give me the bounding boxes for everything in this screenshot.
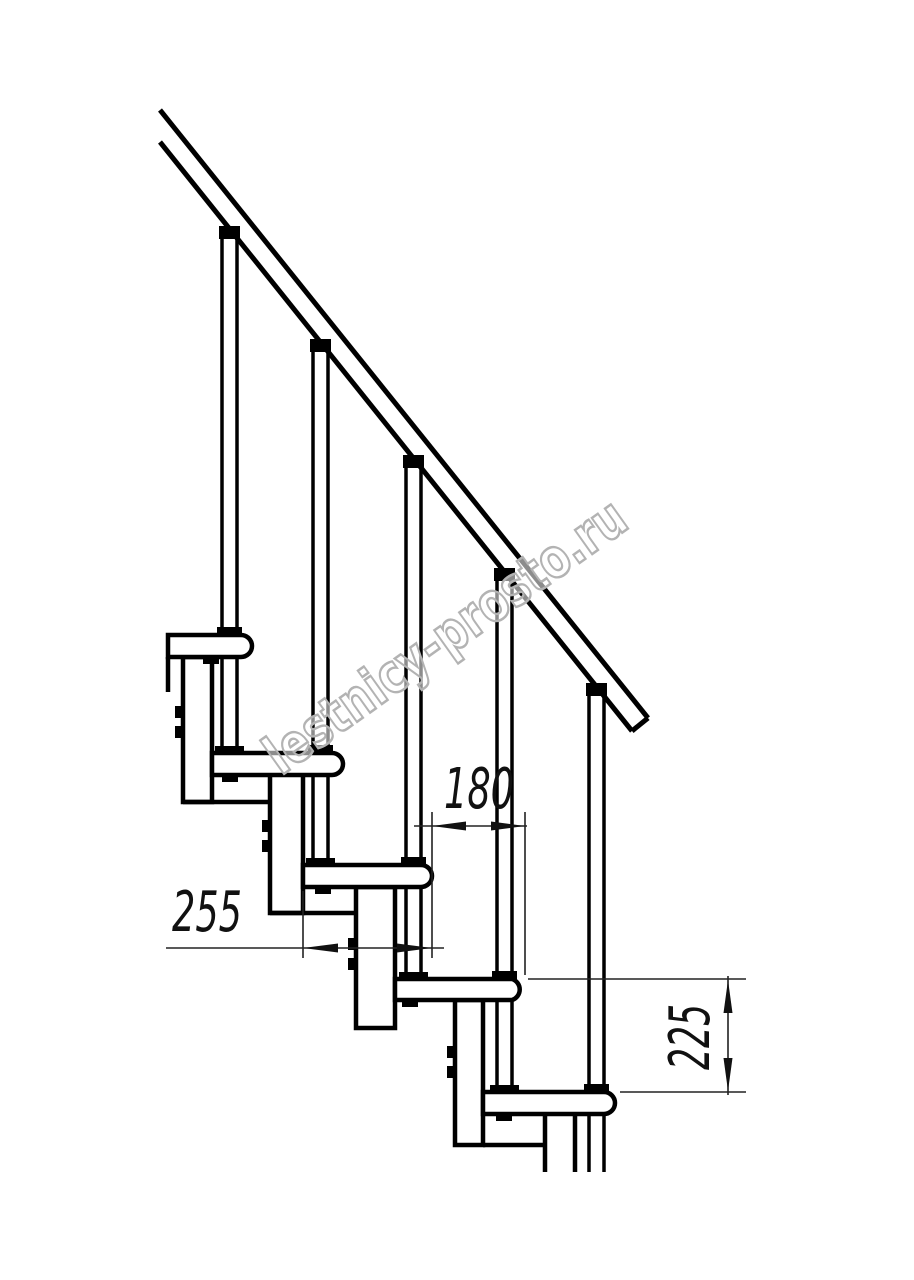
tread-bolt-tab [222,775,238,782]
tread-bolt-tab [402,1000,418,1007]
tread-4 [395,979,520,1000]
dimension-value-255: 255 [172,880,242,945]
baluster-1 [222,229,237,635]
baluster-5 [589,686,604,1092]
arrowhead-down [724,1058,733,1091]
dimension-value-180: 180 [444,757,514,822]
support-tube-2 [313,775,328,865]
module-box-1 [183,657,212,802]
dimension-step-rise: 225 [528,976,746,1095]
tread-1 [168,635,252,657]
box-bolt-nub [447,1066,456,1078]
tread-5 [483,1092,615,1114]
support-tube-3 [406,887,421,979]
dimension-value-225: 225 [658,1004,723,1070]
support-tube-5 [589,1114,604,1172]
baluster-foot-bracket [584,1084,609,1093]
tube-foot-bracket [215,746,244,754]
support-tube-1 [222,657,237,753]
tread-bolt-tab [315,887,331,894]
box-bolt-nub [262,840,271,852]
drawing-canvas: 255 180 225 lestnicy-prosto.ru [0,0,914,1280]
tread-bolt-tab [496,1114,512,1121]
baluster-foot-bracket [492,971,517,980]
baluster-foot-bracket [401,857,426,866]
tube-foot-bracket [306,858,335,866]
module-box-2 [270,773,303,913]
handrail-end-cap [632,718,648,731]
box-bolt-nub [262,820,271,832]
module-box-4 [455,1000,483,1145]
box-bolt-nub [447,1046,456,1058]
tube-foot-bracket [399,972,428,980]
arrowhead-left [303,944,338,953]
box-bolt-nub [348,958,357,970]
module-box-3 [356,887,395,1028]
baluster-foot-bracket [217,627,242,636]
support-tube-4 [497,1000,512,1092]
box-bolt-nub [175,726,184,738]
tread-bolt-tab [203,657,219,664]
box-bolt-nub [175,706,184,718]
tread-3 [303,865,432,887]
staircase-drawing: 255 180 225 lestnicy-prosto.ru [0,0,914,1280]
arrowhead-up [724,980,733,1013]
module-box-5 [545,1114,575,1172]
tube-foot-bracket [490,1085,519,1093]
arrowhead-left [432,822,466,831]
